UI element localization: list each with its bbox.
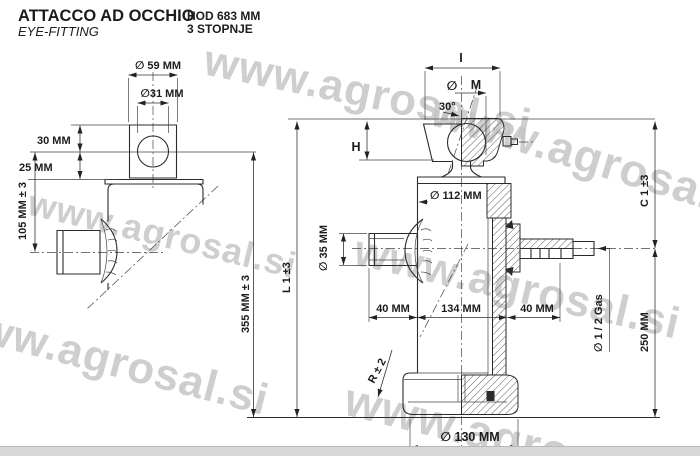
dim-label-30mm: 30 MM bbox=[37, 135, 71, 147]
dim-label-40-right: 40 MM bbox=[520, 303, 554, 315]
bottom-seal bbox=[487, 391, 495, 401]
dim-label-112: ∅ 112 MM bbox=[430, 190, 482, 202]
outer-wall-section bbox=[493, 218, 507, 375]
dim-label-134: 134 MM bbox=[441, 303, 481, 315]
dim-label-eye-outer: ∅ 59 MM bbox=[135, 60, 181, 72]
dim-label-i: I bbox=[459, 51, 462, 65]
spec-stroke: HOD 683 MM bbox=[187, 9, 260, 23]
window-edge-strip bbox=[0, 447, 700, 456]
dim-label-250: 250 MM bbox=[639, 312, 651, 352]
dim-label-105mm: 105 MM ± 3 bbox=[17, 182, 29, 240]
dim-label-h: H bbox=[351, 140, 360, 154]
dim-label-355mm: 355 MM ± 3 bbox=[240, 275, 252, 333]
dim-label-35: ∅ 35 MM bbox=[318, 225, 330, 271]
dim-label-c1: C 1 ±3 bbox=[639, 175, 651, 207]
technical-drawing-page: www.agrosal.si www.agrosal.si www.agrosa… bbox=[0, 0, 700, 456]
dim-label-l1: L 1 ±3 bbox=[281, 262, 293, 293]
watermark-text: www.agrosal.si bbox=[0, 294, 274, 425]
dim-label-eye-hole: ∅31 MM bbox=[140, 88, 183, 100]
dim-label-130: ∅ 130 MM bbox=[440, 430, 499, 444]
dim-label-gas: ∅ 1 / 2 Gas bbox=[593, 294, 605, 352]
dim-label-25mm: 25 MM bbox=[19, 162, 53, 174]
spec-stages: 3 STOPNJE bbox=[187, 22, 253, 36]
watermark-layer: www.agrosal.si www.agrosal.si www.agrosa… bbox=[0, 36, 700, 456]
gland-section bbox=[487, 184, 511, 219]
eye-flange bbox=[105, 180, 203, 185]
threaded-port bbox=[505, 220, 594, 276]
dim-label-40-left: 40 MM bbox=[376, 303, 410, 315]
dim-label-m: M bbox=[471, 78, 481, 92]
dim-tube-diameter: ∅ 112 MM bbox=[419, 190, 482, 202]
drawing-header: ATTACCO AD OCCHIO EYE-FITTING HOD 683 MM… bbox=[18, 7, 260, 39]
dim-label-dia-symbol: ∅ bbox=[447, 79, 458, 93]
dim-label-angle: 30° bbox=[439, 101, 456, 113]
watermark-text: www.agrosal.si bbox=[23, 182, 301, 286]
socket-section bbox=[462, 119, 505, 167]
title-italian: ATTACCO AD OCCHIO bbox=[18, 7, 195, 25]
cylinder-drawing: www.agrosal.si www.agrosal.si www.agrosa… bbox=[0, 0, 700, 456]
title-english: EYE-FITTING bbox=[18, 24, 99, 39]
